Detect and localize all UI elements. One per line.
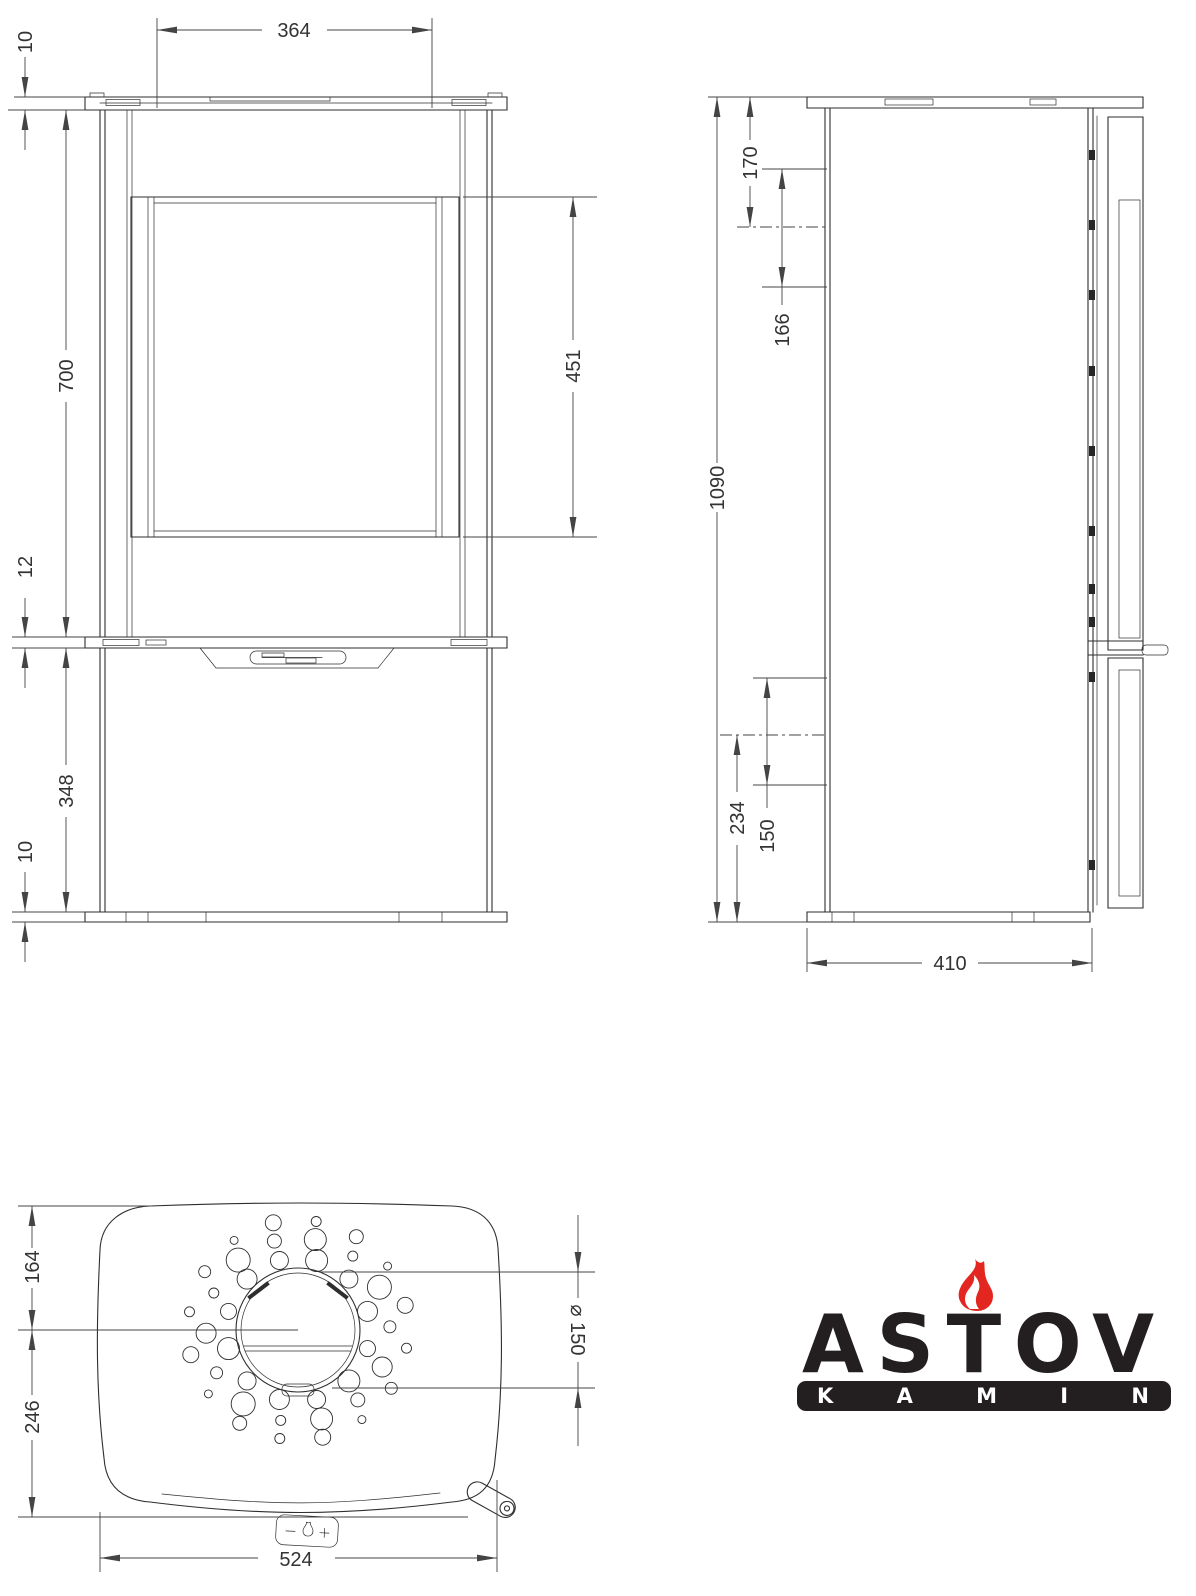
top-view bbox=[97, 1203, 518, 1548]
dim-front-base-plate: 10 bbox=[15, 841, 37, 863]
dim-front-upper-height: 700 bbox=[56, 359, 78, 392]
brand-logo: ASTOV KAMIN bbox=[797, 1259, 1171, 1411]
side-handle bbox=[1142, 645, 1168, 655]
dim-front-top-width: 364 bbox=[277, 20, 310, 42]
dim-front-glass-height: 451 bbox=[563, 349, 585, 382]
air-control-badge bbox=[275, 1514, 338, 1547]
dim-side-total-height: 1090 bbox=[707, 466, 729, 511]
flame-icon-small bbox=[303, 1522, 314, 1537]
side-upper-door bbox=[1108, 117, 1143, 650]
front-mid-shelf bbox=[85, 637, 507, 648]
dim-front-top-plate: 10 bbox=[15, 31, 37, 53]
top-lever-handle bbox=[464, 1478, 519, 1521]
dim-top-width: 524 bbox=[279, 1549, 312, 1571]
dim-side-depth: 410 bbox=[933, 953, 966, 975]
dim-top-front-to-flue: 164 bbox=[22, 1250, 44, 1283]
dim-side-bottom-offset: 234 bbox=[727, 801, 749, 834]
front-lower-body bbox=[100, 648, 492, 912]
side-back-wall bbox=[825, 108, 830, 912]
front-view bbox=[85, 93, 507, 922]
dim-front-lower-height: 348 bbox=[56, 774, 78, 807]
dim-front-mid-plate: 12 bbox=[15, 556, 37, 578]
dim-top-flue-to-back: 246 bbox=[22, 1400, 44, 1433]
dim-top-flue-diameter: ⌀ 150 bbox=[566, 1305, 588, 1356]
side-base-plate bbox=[807, 912, 1090, 922]
technical-drawing-canvas: 364 10 700 451 12 348 10 1090 170 166 23… bbox=[0, 0, 1196, 1596]
brand-name: ASTOV bbox=[802, 1298, 1154, 1391]
door-hinges bbox=[1089, 150, 1095, 870]
dim-side-inlet-span: 150 bbox=[757, 819, 779, 852]
top-body-outline bbox=[97, 1203, 501, 1513]
stove-technical-drawing-page: 364 10 700 451 12 348 10 1090 170 166 23… bbox=[0, 0, 1196, 1596]
front-top-plate bbox=[85, 97, 507, 110]
dim-side-rear-offset: 166 bbox=[772, 313, 794, 346]
side-view bbox=[807, 97, 1168, 922]
side-top-plate bbox=[807, 97, 1143, 108]
front-body-sides bbox=[100, 110, 492, 637]
front-glass-door bbox=[131, 197, 459, 537]
side-lower-door bbox=[1108, 658, 1143, 908]
dim-side-top-offset: 170 bbox=[740, 146, 762, 179]
